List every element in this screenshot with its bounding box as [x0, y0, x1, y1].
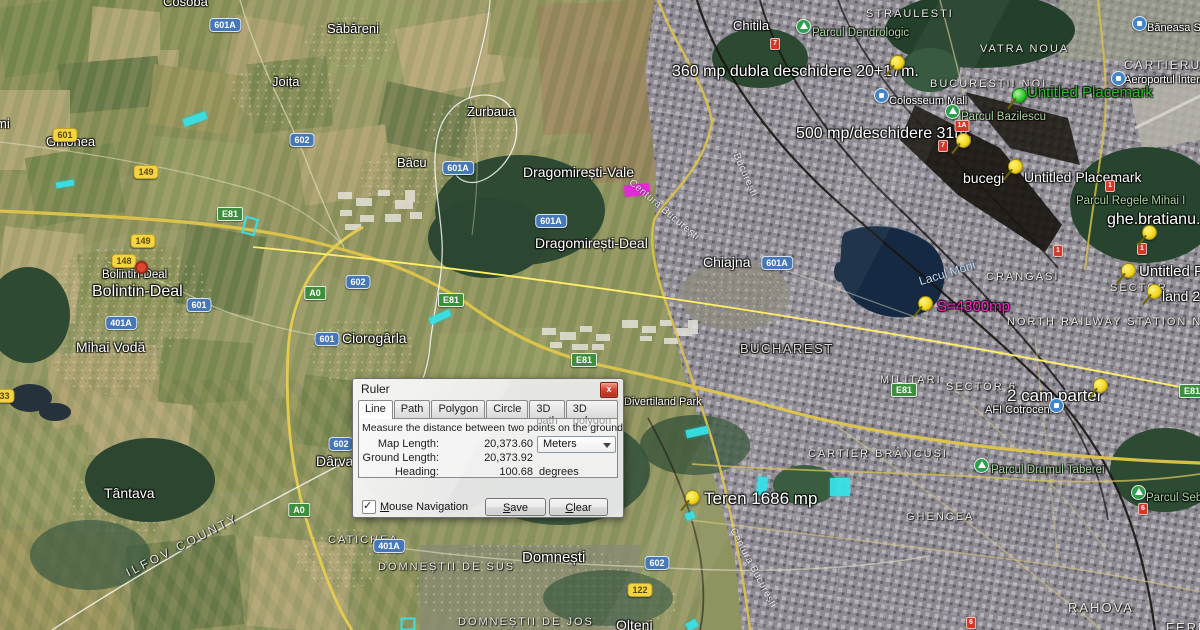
annotation-label: Teren 1686 mp [704, 489, 817, 509]
area-label: RAHOVA [1068, 600, 1134, 615]
area-label: GHENCEA [906, 511, 974, 523]
place-label: Chitila [733, 18, 769, 33]
road-shield: 601A [209, 18, 241, 32]
place-label: Dragomirești-Deal [535, 235, 648, 251]
place-label: Dragomirești-Vale [523, 164, 634, 180]
road-shield: 601 [52, 128, 77, 142]
route-badge: 7 [770, 38, 780, 50]
place-label: mi [0, 116, 10, 131]
town-marker-icon [135, 261, 148, 274]
tab-3d-polygon[interactable]: 3D polygon [566, 400, 619, 418]
save-button-text: Save [492, 500, 539, 516]
road-shield: 602 [328, 437, 353, 451]
area-label: CRANGASI [986, 271, 1059, 283]
units-selected: Meters [543, 438, 577, 450]
annotation-label: Untitled Placemark [1024, 169, 1142, 185]
area-label: FERE [1166, 620, 1200, 630]
area-label: DOMNEȘTII DE JOS [458, 616, 594, 628]
park-label: Parcul Seba [1146, 492, 1200, 504]
park-label: Parcul Drumul Taberei [991, 464, 1105, 476]
road-shield: 148 [111, 254, 136, 268]
place-label: Mihai Vodă [76, 339, 145, 355]
poi-label: Băneasa Sh [1147, 22, 1200, 34]
poi-label: Divertiland Park [624, 396, 702, 408]
place-label: Ciorogârla [342, 330, 407, 346]
road-shield: 601 [186, 298, 211, 312]
ground-length-label: Ground Length: [361, 452, 439, 464]
annotation-label-magenta: S=4300mp [937, 298, 1010, 315]
road-shield: 401A [373, 539, 405, 553]
map-length-label: Map Length: [361, 438, 439, 450]
park-icon[interactable] [974, 458, 989, 473]
route-badge: 1 [1053, 245, 1063, 257]
route-badge: 1 [1105, 180, 1115, 192]
tab-line[interactable]: Line [358, 400, 393, 419]
units-dropdown[interactable]: Meters [537, 436, 616, 453]
ruler-tab-strip: Line Path Polygon Circle 3D path 3D poly… [358, 400, 618, 418]
road-shield: E81 [1179, 384, 1200, 398]
annotation-label: bucegi [963, 170, 1004, 186]
mall-icon[interactable] [1132, 16, 1147, 31]
annotation-label: 360 mp dubla deschidere 20+17m. [672, 63, 919, 81]
ruler-dialog: Ruler x Line Path Polygon Circle 3D path… [352, 378, 624, 518]
park-icon[interactable] [945, 104, 960, 119]
placemark-pin-icon[interactable] [912, 296, 934, 320]
route-badge: 6 [966, 617, 976, 629]
drawn-polygon-cyan[interactable] [830, 478, 850, 496]
park-icon[interactable] [1131, 485, 1146, 500]
park-label: Parcul Dendrologic [812, 27, 909, 39]
route-badge: 6 [1138, 503, 1148, 515]
park-icon[interactable] [796, 19, 811, 34]
tab-polygon[interactable]: Polygon [431, 400, 485, 418]
road-shield: 601A [442, 161, 474, 175]
measure-description: Measure the distance between two points … [362, 422, 623, 434]
chevron-down-icon [603, 443, 611, 448]
place-label: Cosoba [163, 0, 208, 9]
mall-icon[interactable] [1049, 398, 1064, 413]
placemark-pin-icon[interactable] [1087, 378, 1109, 402]
road-shield: 122 [627, 583, 652, 597]
check-icon: ✓ [363, 499, 372, 512]
heading-unit: degrees [539, 466, 579, 478]
road-shield: E81 [217, 207, 243, 221]
placemark-pin-icon[interactable] [679, 490, 701, 514]
area-label: CARTIER BRÂNCUȘI [808, 448, 948, 460]
annotation-label: land 2 [1162, 288, 1200, 304]
dialog-title: Ruler [361, 382, 390, 396]
area-label: STRAULESTI [866, 8, 954, 20]
placemark-pin-icon[interactable] [884, 55, 906, 79]
road-shield: E81 [571, 353, 597, 367]
road-shield: 133 [0, 389, 15, 403]
placemark-pin-icon[interactable] [1006, 88, 1028, 112]
annotation-label: Untitled P [1139, 263, 1200, 280]
road-shield: 602 [644, 556, 669, 570]
heading-value: 100.68 [463, 466, 533, 478]
mall-icon[interactable] [874, 88, 889, 103]
road-shield: 149 [130, 234, 155, 248]
place-label: Bolintin-Deal [102, 269, 167, 281]
heading-label: Heading: [361, 466, 439, 478]
airport-icon[interactable] [1111, 71, 1126, 86]
placemark-pin-icon[interactable] [1136, 225, 1158, 249]
placemark-pin-icon[interactable] [950, 133, 972, 157]
place-label: Bolintin-Deal [92, 283, 183, 301]
road-shield: A0 [288, 503, 310, 517]
placemark-pin-icon[interactable] [1002, 159, 1024, 183]
placemark-pin-icon[interactable] [1115, 263, 1137, 287]
place-label: Săbăreni [327, 21, 379, 36]
place-label: Domnești [522, 549, 585, 566]
tab-3d-path[interactable]: 3D path [529, 400, 564, 418]
place-label: Olteni [616, 617, 653, 630]
road-shield: 602 [289, 133, 314, 147]
place-label: Tântava [104, 485, 155, 501]
route-badge: 7 [938, 140, 948, 152]
road-shield: 601 [314, 332, 339, 346]
road-shield: 601A [761, 256, 793, 270]
road-shield: 401A [105, 316, 137, 330]
road-shield: 149 [133, 165, 158, 179]
annotation-label-green: Untitled Placemark [1027, 84, 1153, 101]
road-shield: A0 [304, 286, 326, 300]
road-shield: E81 [891, 383, 917, 397]
road-shield: E81 [438, 293, 464, 307]
placemark-pin-icon[interactable] [1141, 284, 1163, 308]
map-length-value: 20,373.60 [463, 438, 533, 450]
place-label: Bâcu [397, 155, 427, 170]
close-icon[interactable]: x [600, 382, 618, 398]
area-label: BUCHAREST [740, 341, 834, 356]
mouse-navigation-text: Mouse Navigation [380, 501, 468, 513]
park-label: Parcul Regele Mihai I [1076, 195, 1185, 207]
ground-length-value: 20,373.92 [463, 452, 533, 464]
area-label: DOMNEȘTII DE SUS [378, 561, 515, 573]
clear-button[interactable]: Clear [549, 498, 608, 516]
area-label: CARTIERUL HE [1124, 58, 1200, 72]
area-label: VATRA NOUA [980, 43, 1069, 55]
tab-path[interactable]: Path [394, 400, 431, 418]
drawn-outline-cyan[interactable] [401, 618, 416, 630]
place-label: Zurbaua [467, 104, 515, 119]
area-label: NORTH RAILWAY STATION NEIGH [1007, 316, 1200, 328]
clear-button-text: Clear [556, 500, 601, 516]
place-label: Joița [272, 74, 299, 89]
route-badge: 1A [955, 120, 970, 132]
tab-circle[interactable]: Circle [486, 400, 528, 418]
park-label: Parcul Bazilescu [961, 111, 1046, 123]
place-label: Chiajna [703, 254, 750, 270]
road-shield: 601A [535, 214, 567, 228]
mouse-navigation-checkbox[interactable]: ✓ [362, 500, 376, 514]
save-button[interactable]: Save [485, 498, 546, 516]
road-shield: 602 [345, 275, 370, 289]
earth-viewport[interactable]: Cosoba Săbăreni Joița Zurbaua Bâcu Drago… [0, 0, 1200, 630]
mouse-navigation-label: Mouse Navigation [380, 501, 468, 513]
